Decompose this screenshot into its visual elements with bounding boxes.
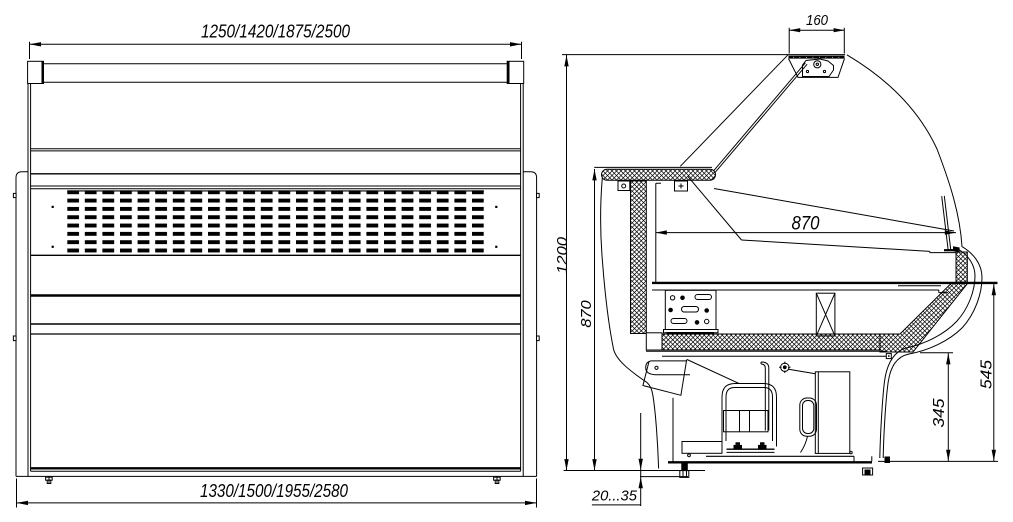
svg-text:345: 345 — [931, 398, 948, 427]
svg-text:1200: 1200 — [554, 236, 571, 274]
svg-text:1330/1500/1955/2580: 1330/1500/1955/2580 — [200, 480, 349, 501]
svg-text:870: 870 — [792, 213, 820, 234]
svg-text:20...35: 20...35 — [591, 487, 638, 504]
svg-text:1250/1420/1875/2500: 1250/1420/1875/2500 — [201, 21, 351, 42]
svg-text:870: 870 — [578, 300, 595, 328]
svg-text:545: 545 — [979, 360, 996, 389]
svg-text:160: 160 — [806, 13, 828, 29]
